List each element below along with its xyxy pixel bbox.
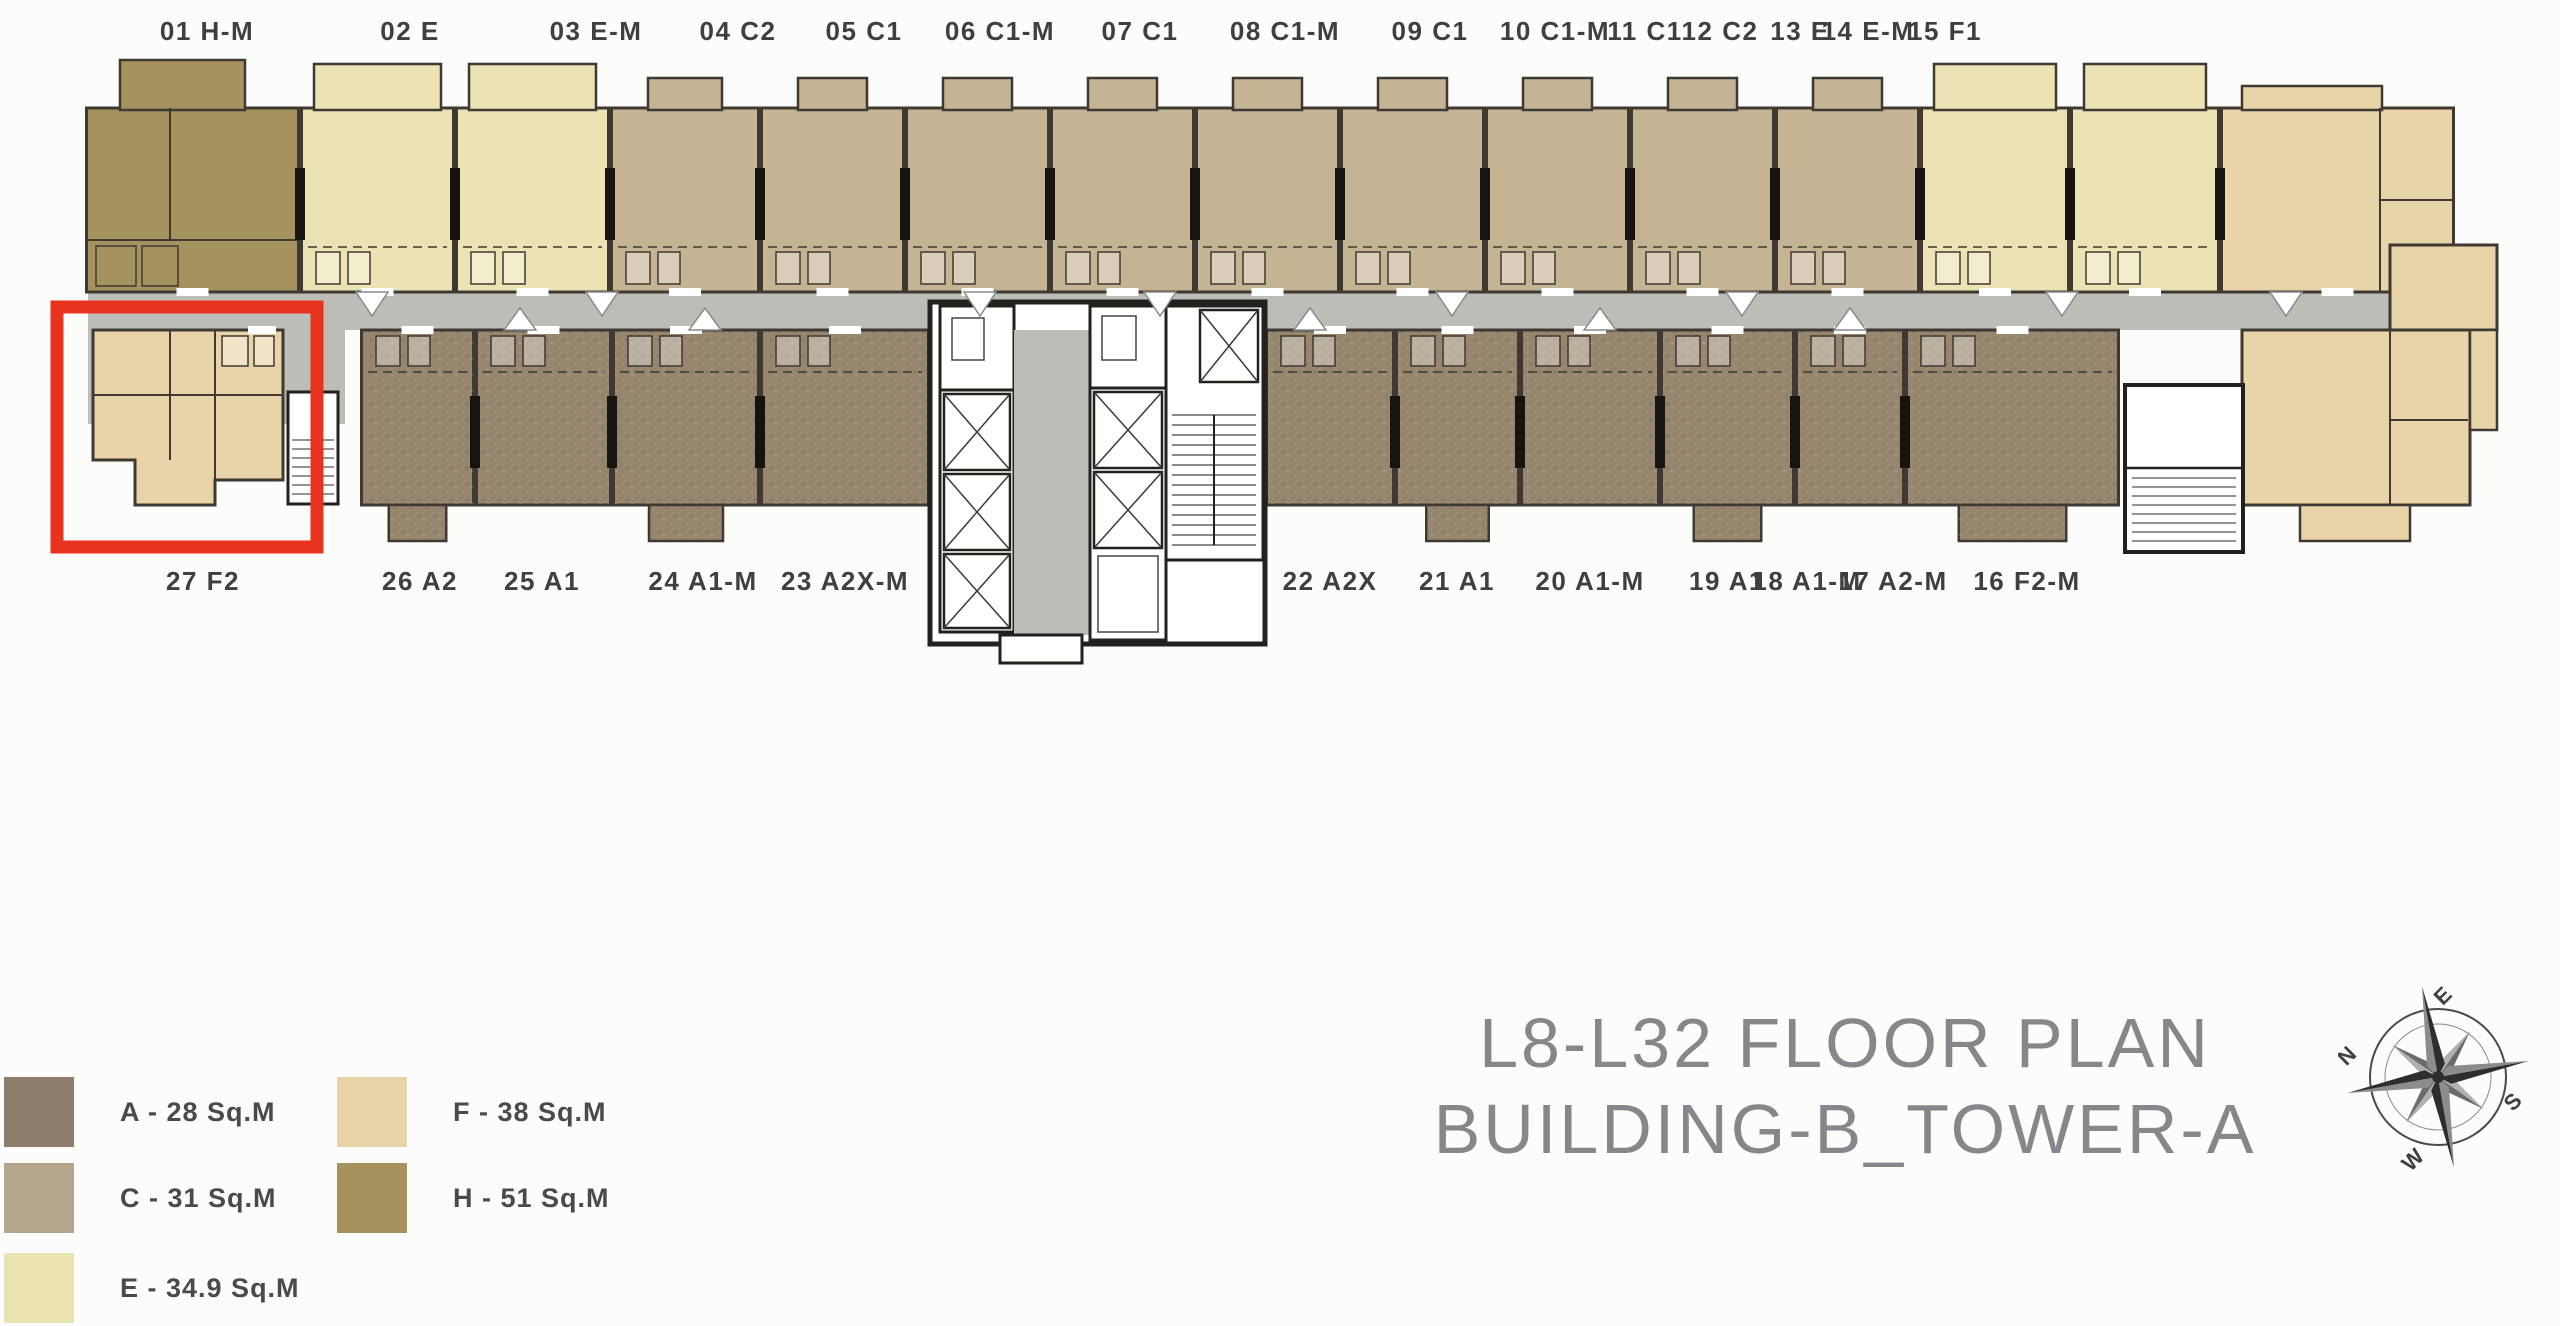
unit-label-04-c2: 04 C2: [700, 16, 777, 46]
door-bar: [450, 168, 460, 240]
unit-20-a1-m: [1522, 326, 1659, 505]
compass-letter-w: W: [2397, 1143, 2430, 1176]
door-bar: [1480, 168, 1490, 240]
unit-label-21-a1: 21 A1: [1419, 566, 1495, 596]
unit-label-05-c1: 05 C1: [826, 16, 903, 46]
floor-plan-drawing: 01 H-M02 E03 E-M04 C205 C106 C1-M07 C108…: [0, 0, 2560, 700]
unit-21-a1: [1397, 326, 1519, 541]
unit-09-c1: [1342, 78, 1484, 296]
unit-label-23-a2x-m: 23 A2X-M: [781, 566, 909, 596]
floor-plan-title-line2: BUILDING-B_TOWER-A: [1390, 1086, 2300, 1172]
stair-core-east: [2125, 385, 2243, 552]
legend-swatch-h: [337, 1163, 407, 1233]
stair-core-central: [1166, 306, 1263, 560]
door-bar: [1790, 396, 1800, 468]
unit-label-10-c1-m: 10 C1-M: [1500, 16, 1610, 46]
compass-rose-icon: NESW: [2338, 972, 2538, 1187]
door-bar: [295, 168, 305, 240]
unit-24-a1-m: [614, 326, 759, 541]
door-bar: [1625, 168, 1635, 240]
unit-08-c1-m: [1197, 78, 1339, 296]
unit-05-c1: [762, 78, 904, 296]
legend-label-a: A - 28 Sq.M: [120, 1077, 276, 1147]
unit-label-08-c1-m: 08 C1-M: [1230, 16, 1340, 46]
unit-13-e: [1922, 64, 2069, 296]
unit-04-c2: [612, 78, 759, 296]
unit-label-27-f2: 27 F2: [166, 566, 240, 596]
unit-22-a2x: [1267, 326, 1394, 505]
unit-label-22-a2x: 22 A2X: [1283, 566, 1378, 596]
unit-27-f2: [93, 326, 283, 505]
door-bar: [755, 396, 765, 468]
door-bar: [605, 168, 615, 240]
unit-03-e-m: [457, 64, 609, 296]
door-bar: [1390, 396, 1400, 468]
compass-letter-e: E: [2429, 982, 2457, 1010]
door-bar: [1190, 168, 1200, 240]
door-bar: [1770, 168, 1780, 240]
unit-label-06-c1-m: 06 C1-M: [945, 16, 1055, 46]
door-bar: [2065, 168, 2075, 240]
unit-label-24-a1-m: 24 A1-M: [648, 566, 757, 596]
unit-label-20-a1-m: 20 A1-M: [1535, 566, 1644, 596]
legend-swatch-f: [337, 1077, 407, 1147]
unit-label-11-c1: 11 C1: [1607, 16, 1682, 46]
legend-swatch-a: [4, 1077, 74, 1147]
door-bar: [755, 168, 765, 240]
compass-letter-s: S: [2499, 1088, 2527, 1116]
unit-18-a1-m: [1797, 326, 1904, 505]
unit-26-a2: [362, 326, 474, 541]
door-bar: [900, 168, 910, 240]
floor-plan-title-line1: L8-L32 FLOOR PLAN: [1390, 1000, 2300, 1086]
unit-label-02-e: 02 E: [380, 16, 440, 46]
compass-letter-n: N: [2338, 1041, 2361, 1070]
unit-label-26-a2: 26 A2: [382, 566, 458, 596]
door-bar: [1655, 396, 1665, 468]
unit-label-09-c1: 09 C1: [1392, 16, 1469, 46]
unit-label-17-a2-m: 17 A2-M: [1838, 566, 1947, 596]
unit-label-14-e-m: 14 E-M: [1822, 16, 1915, 46]
unit-19-a1: [1662, 326, 1794, 541]
legend-swatch-e: [4, 1253, 74, 1323]
unit-label-25-a1: 25 A1: [504, 566, 580, 596]
unit-07-c1: [1052, 78, 1194, 296]
legend-label-c: C - 31 Sq.M: [120, 1163, 277, 1233]
legend-label-e: E - 34.9 Sq.M: [120, 1253, 300, 1323]
unit-01-h-m: [87, 60, 299, 296]
unit-label-01-h-m: 01 H-M: [160, 16, 254, 46]
unit-02-e: [302, 64, 454, 296]
unit-12-c2: [1777, 78, 1919, 296]
door-bar: [1515, 396, 1525, 468]
door-bar: [1335, 168, 1345, 240]
door-bar: [1045, 168, 1055, 240]
unit-label-12-c2: 12 C2: [1682, 16, 1759, 46]
legend-label-f: F - 38 Sq.M: [453, 1077, 607, 1147]
door-bar: [607, 396, 617, 468]
floor-plan-title: L8-L32 FLOOR PLAN BUILDING-B_TOWER-A: [1390, 1000, 2300, 1172]
door-bar: [470, 396, 480, 468]
unit-label-16-f2-m: 16 F2-M: [1973, 566, 2080, 596]
door-bar: [1900, 396, 1910, 468]
unit-25-a1: [477, 326, 611, 505]
door-bar: [1915, 168, 1925, 240]
unit-17-a2-m: [1907, 326, 2119, 541]
unit-10-c1-m: [1487, 78, 1629, 296]
unit-label-03-e-m: 03 E-M: [550, 16, 643, 46]
door-bar: [2215, 168, 2225, 240]
unit-label-07-c1: 07 C1: [1102, 16, 1179, 46]
unit-06-c1-m: [907, 78, 1049, 296]
unit-label-15-f1: 15 F1: [1908, 16, 1982, 46]
legend-label-h: H - 51 Sq.M: [453, 1163, 610, 1233]
legend-swatch-c: [4, 1163, 74, 1233]
unit-23-a2x-m: [762, 326, 929, 505]
unit-14-e-m: [2072, 64, 2219, 296]
unit-11-c1: [1632, 78, 1774, 296]
